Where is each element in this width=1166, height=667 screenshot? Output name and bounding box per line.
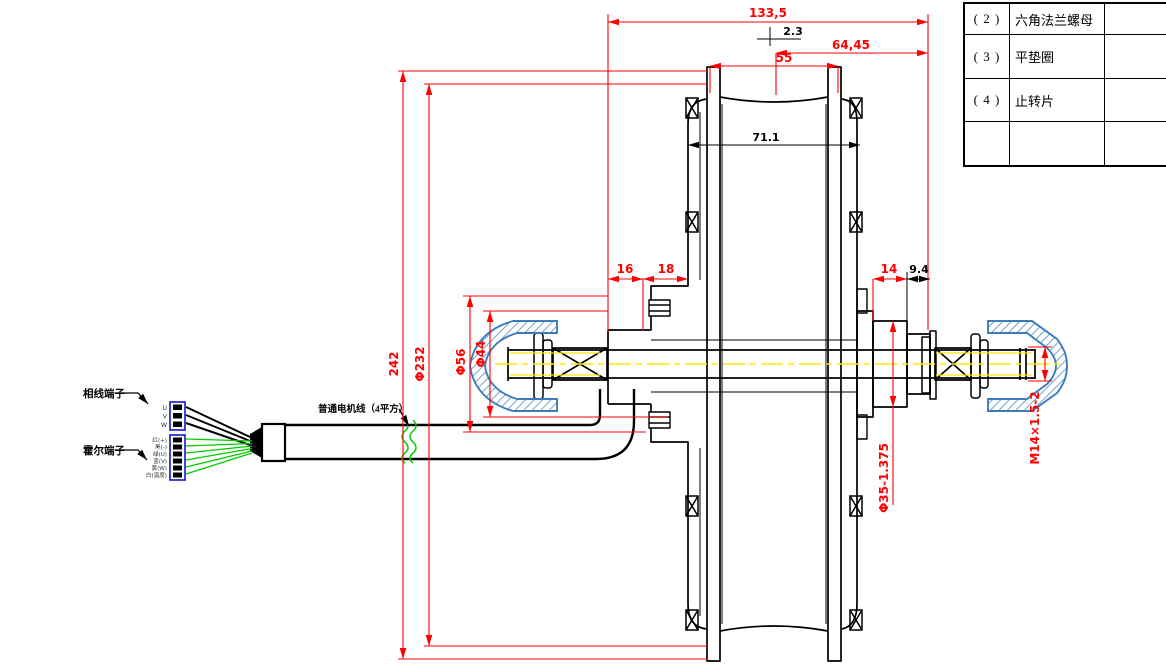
part-remark [1105, 79, 1166, 122]
part-no: ( 2 ) [965, 4, 1010, 35]
dimensions-black [688, 27, 930, 334]
dim-18-text: 18 [658, 262, 675, 276]
dim-55-text: 55 [776, 51, 793, 65]
part-no [965, 122, 1010, 165]
hall-pin-red: 红(+) [152, 436, 167, 444]
drawing-sheet: U V W 红(+) 黑(-) 绿(U) 蓝(V) 黄(W) 白(温度) 相线端… [0, 0, 1166, 667]
hall-pin-black: 黑(-) [155, 444, 167, 451]
dim-16-text: 16 [617, 262, 634, 276]
part-name: 六角法兰螺母 [1010, 4, 1105, 35]
pin-labels: U V W 红(+) 黑(-) 绿(U) 蓝(V) 黄(W) 白(温度) [146, 405, 168, 479]
hall-pin-green: 绿(U) [153, 450, 167, 458]
part-no: ( 4 ) [965, 79, 1010, 122]
dim-64-45-text: 64,45 [832, 38, 870, 52]
cable-label: 普通电机线（4平方） [318, 403, 408, 415]
phase-connector [170, 402, 185, 430]
part-name: 止转片 [1010, 79, 1105, 122]
flat-washers [534, 331, 988, 399]
dim-m14-text: M14×1.5-2 [1028, 391, 1042, 464]
part-remark [1105, 122, 1166, 165]
dim-14-text: 14 [881, 262, 898, 276]
hall-connector [170, 435, 185, 480]
dim-9-4-text: 9.4 [909, 263, 929, 276]
part-no: ( 3 ) [965, 35, 1010, 79]
dim-232-text: Φ232 [413, 346, 427, 381]
dim-133-5-text: 133,5 [749, 6, 787, 20]
hall-pin-blue: 蓝(V) [153, 457, 167, 465]
dim-56-text: Φ56 [454, 349, 468, 376]
cable-ferrule [262, 424, 285, 461]
dim-35-text: Φ35-1.375 [877, 443, 891, 513]
cable-break-marks [402, 420, 416, 463]
part-name: 平垫圈 [1010, 35, 1105, 79]
motor-cable [262, 389, 634, 461]
dim-44-text: Φ44 [474, 341, 488, 368]
pin-label-w: W [161, 422, 167, 429]
drum-top-shell [720, 97, 828, 102]
drum-bottom-shell [720, 626, 828, 631]
part-remark [1105, 4, 1166, 35]
pin-label-v: V [163, 414, 168, 421]
dim-71-1-text: 71.1 [752, 131, 779, 144]
parts-table: ( 2 ) 六角法兰螺母 ( 3 ) 平垫圈 ( 4 ) 止转片 [963, 2, 1166, 167]
dim-2-3-text: 2.3 [783, 25, 803, 38]
part-remark [1105, 35, 1166, 79]
terminal-studs [649, 289, 867, 439]
hall-pin-yellow: 黄(W) [152, 464, 168, 472]
dim-242-text: 242 [387, 351, 401, 376]
part-name [1010, 122, 1105, 165]
center-lines [495, 353, 1060, 375]
hall-wires [186, 439, 252, 474]
hall-pin-white: 白(温度) [146, 471, 167, 479]
pin-label-u: U [162, 405, 167, 412]
